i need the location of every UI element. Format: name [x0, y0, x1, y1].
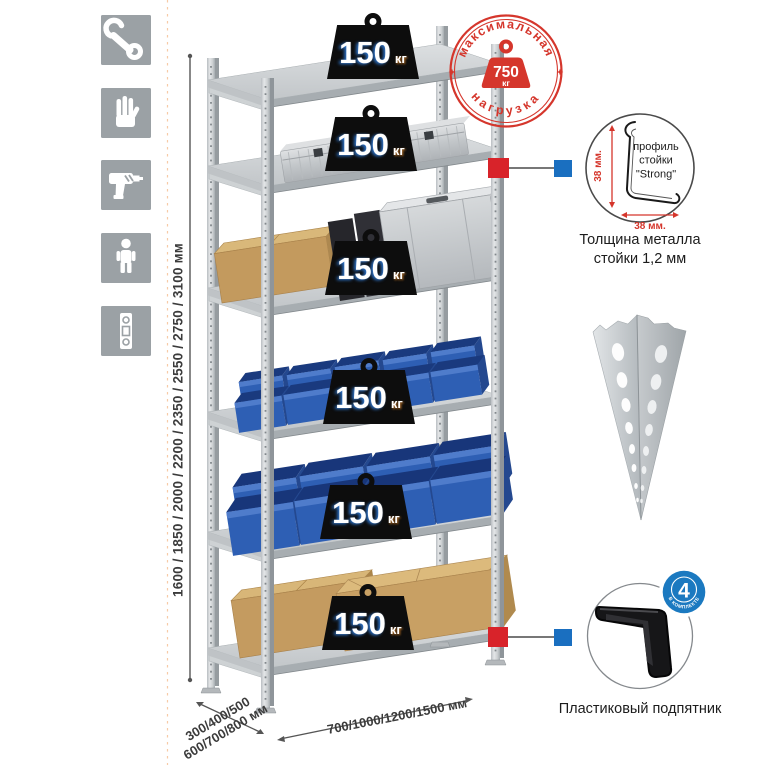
- connector-top: [488, 158, 572, 178]
- stamp-unit: кг: [502, 78, 510, 88]
- weight-body: 150 кг: [325, 241, 417, 295]
- shelf-load-badge-3: 150 кг: [325, 229, 417, 295]
- profile-label-line1: профиль: [633, 141, 679, 153]
- load-value: 150: [334, 608, 386, 639]
- load-value: 150: [337, 253, 389, 284]
- height-dimension-label: 1600 / 1850 / 2000 / 2200 / 2350 / 2550 …: [171, 243, 186, 597]
- shelf-load-badge-4: 150 кг: [323, 358, 415, 424]
- plastic-foot-caption: Пластиковый подпятник: [558, 700, 722, 719]
- load-unit: кг: [390, 622, 402, 637]
- rack-post-back-right: [436, 26, 448, 642]
- load-unit: кг: [395, 51, 407, 66]
- weight-body: 150 кг: [325, 117, 417, 171]
- load-unit: кг: [393, 267, 405, 282]
- load-unit: кг: [388, 511, 400, 526]
- product-infographic: максимальная нагрузка 750 кг 38 мм. 38: [0, 0, 765, 765]
- post-profile-detail: 38 мм. 38 мм. профиль стойки "Strong": [586, 114, 694, 232]
- stamp-weight-icon: 750 кг: [482, 42, 531, 89]
- drill-icon: [101, 160, 151, 210]
- connector-top-blue-marker: [554, 160, 572, 177]
- kit-quantity-value: 4: [678, 580, 690, 603]
- load-value: 150: [332, 497, 384, 528]
- connector-bottom-red-marker: [488, 627, 508, 647]
- connector-top-red-marker: [488, 158, 509, 178]
- plastic-foot-detail: 4 в комплекте: [588, 567, 710, 689]
- weight-body: 150 кг: [322, 596, 414, 650]
- load-unit: кг: [391, 396, 403, 411]
- person-icon: [101, 233, 151, 283]
- weight-body: 150 кг: [320, 485, 412, 539]
- weight-body: 150 кг: [323, 370, 415, 424]
- weight-body: 150 кг: [327, 25, 419, 79]
- kit-quantity-badge: 4 в комплекте: [659, 567, 709, 617]
- shelf-load-badge-6: 150 кг: [322, 584, 414, 650]
- metal-thickness-caption: Толщина металла стойки 1,2 мм: [556, 231, 724, 269]
- rack-post-back-left: [207, 58, 219, 688]
- level-icon: [101, 306, 151, 356]
- upright-profile-image: [593, 315, 686, 520]
- left-toolbar: [101, 15, 151, 356]
- rack-post-front-left: [261, 78, 274, 708]
- connector-bottom-blue-marker: [554, 629, 572, 646]
- rack-post-front-right: [491, 44, 504, 660]
- profile-dim-horizontal: 38 мм.: [621, 212, 679, 232]
- profile-label-line3: "Strong": [636, 169, 676, 181]
- gloves-icon: [101, 88, 151, 138]
- load-value: 150: [337, 129, 389, 160]
- load-value: 150: [339, 37, 391, 68]
- profile-label-line2: стойки: [639, 155, 673, 167]
- shelf-load-badge-1: 150 кг: [327, 13, 419, 79]
- wrench-icon: [101, 15, 151, 65]
- svg-text:38 мм.: 38 мм.: [593, 150, 604, 182]
- height-dimension-line: [188, 54, 192, 682]
- load-value: 150: [335, 382, 387, 413]
- load-unit: кг: [393, 143, 405, 158]
- connector-bottom: [488, 627, 572, 647]
- shelf-load-badge-5: 150 кг: [320, 473, 412, 539]
- shelf-load-badge-2: 150 кг: [325, 105, 417, 171]
- stamp-arc-bottom-text: нагрузка: [469, 89, 544, 118]
